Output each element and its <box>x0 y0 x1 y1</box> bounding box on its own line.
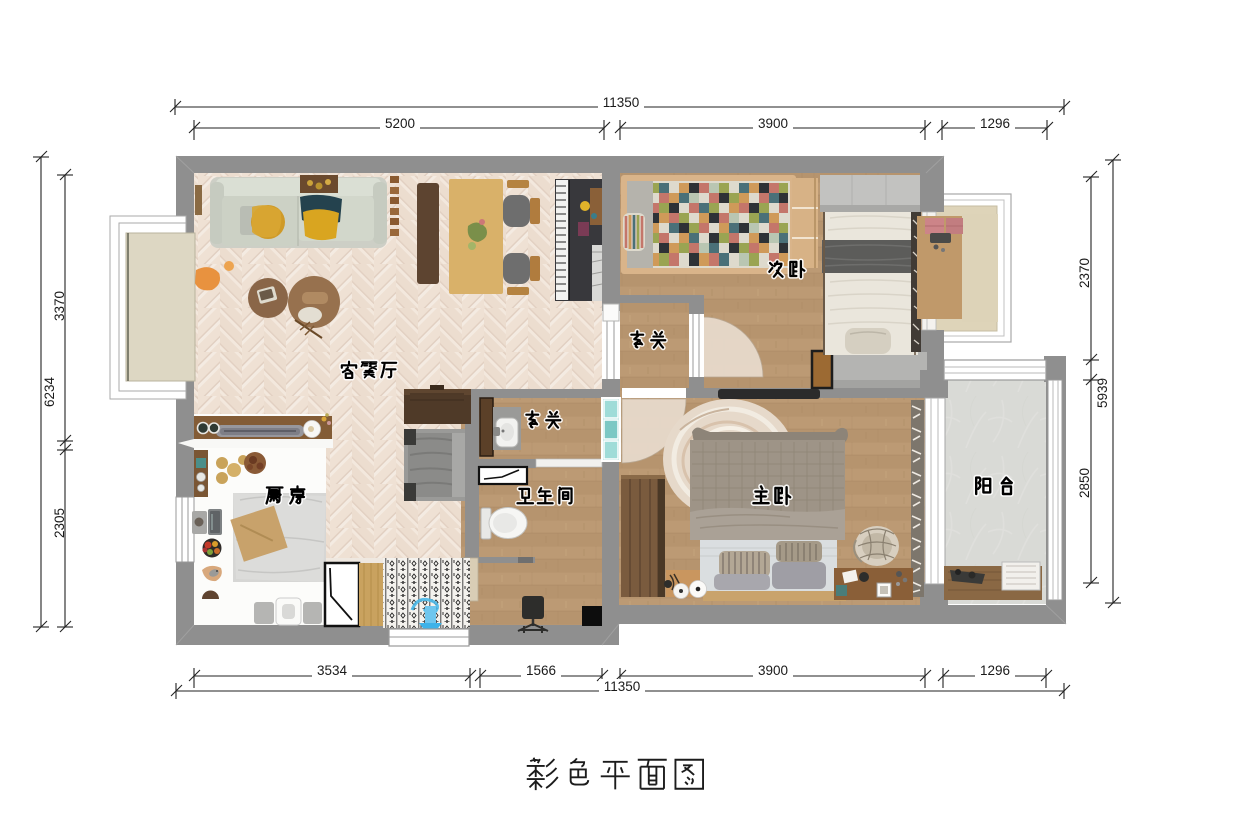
svg-text:11350: 11350 <box>604 679 641 694</box>
svg-text:11350: 11350 <box>603 95 640 110</box>
svg-text:2850: 2850 <box>1077 468 1092 498</box>
svg-text:6234: 6234 <box>42 376 57 407</box>
svg-text:3370: 3370 <box>52 291 67 321</box>
svg-text:3534: 3534 <box>317 663 348 678</box>
svg-text:5939: 5939 <box>1095 378 1110 408</box>
svg-text:1566: 1566 <box>526 663 556 678</box>
svg-text:3900: 3900 <box>758 663 788 678</box>
svg-text:5200: 5200 <box>385 116 415 131</box>
svg-text:1296: 1296 <box>980 663 1010 678</box>
svg-text:1296: 1296 <box>980 116 1010 131</box>
svg-text:2370: 2370 <box>1077 258 1092 288</box>
svg-text:2305: 2305 <box>52 508 67 538</box>
svg-text:3900: 3900 <box>758 116 788 131</box>
